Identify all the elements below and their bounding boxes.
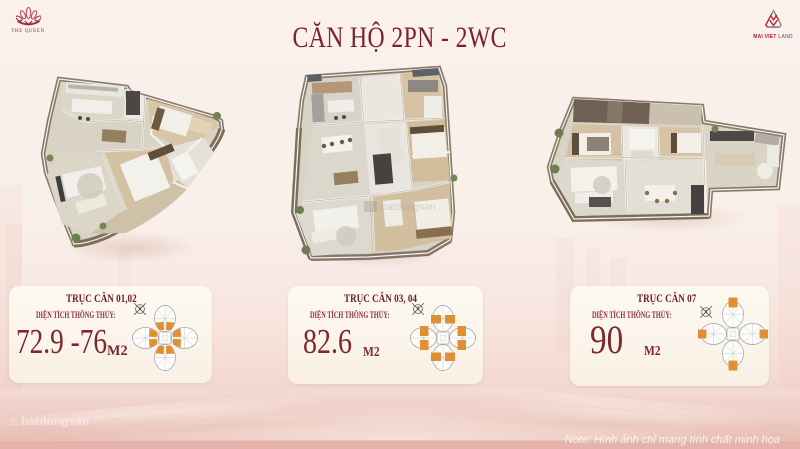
svg-text:batdongsan: batdongsan [381, 201, 436, 213]
